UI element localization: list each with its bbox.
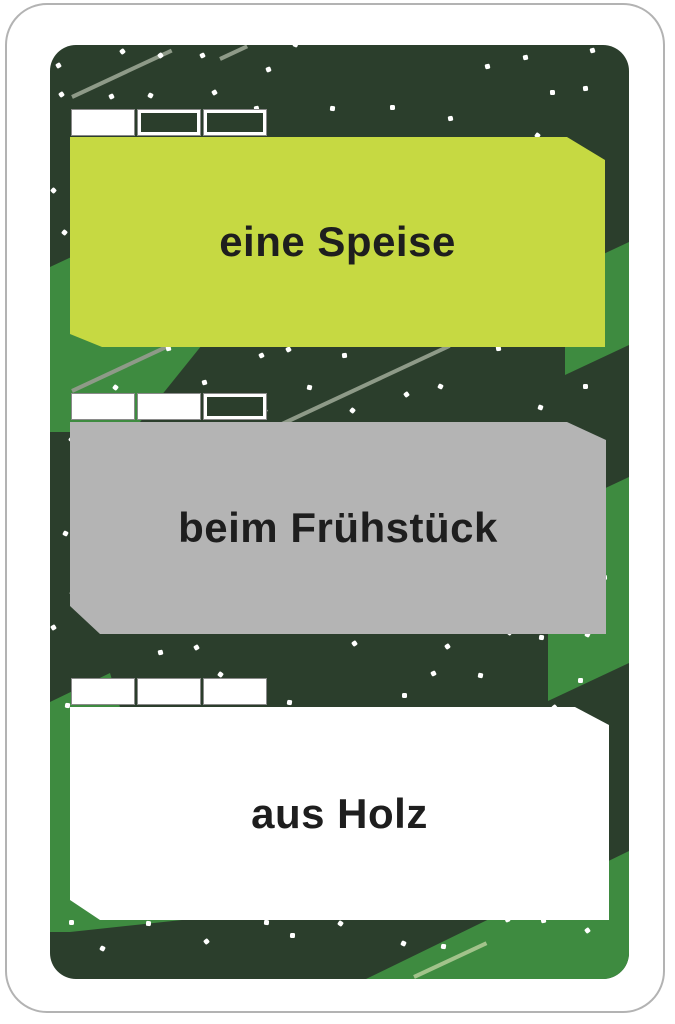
- confetti-dot: [444, 643, 451, 650]
- confetti-dot: [578, 678, 583, 683]
- confetti-dot: [437, 383, 444, 390]
- confetti-dot: [478, 673, 484, 679]
- confetti-dot: [211, 89, 218, 96]
- confetti-dot: [290, 933, 295, 938]
- confetti-dot: [583, 384, 588, 389]
- confetti-dot: [264, 920, 269, 925]
- confetti-dot: [390, 105, 395, 110]
- word-panel-top: eine Speise: [70, 137, 605, 347]
- progress-tabs-row-1: [72, 110, 266, 135]
- confetti-dot: [400, 940, 407, 947]
- confetti-dot: [69, 920, 74, 925]
- confetti-dot: [287, 700, 293, 706]
- tab-indicator-filled: [138, 394, 200, 419]
- confetti-dot: [441, 944, 447, 950]
- confetti-dot: [146, 921, 151, 926]
- confetti-dot: [201, 379, 207, 385]
- tab-indicator-empty: [204, 394, 266, 419]
- game-card: eine Speise beim Frühstück aus Holz: [5, 3, 665, 1013]
- tab-indicator-empty: [138, 110, 200, 135]
- confetti-dot: [158, 650, 164, 656]
- confetti-dot: [537, 404, 543, 410]
- confetti-dot: [448, 116, 454, 122]
- confetti-dot: [147, 92, 154, 99]
- tab-indicator-filled: [72, 679, 134, 704]
- confetti-dot: [62, 530, 69, 537]
- confetti-dot: [337, 920, 344, 927]
- confetti-dot: [349, 407, 356, 414]
- tab-indicator-filled: [72, 394, 134, 419]
- confetti-dot: [199, 52, 206, 59]
- tab-indicator-filled: [204, 679, 266, 704]
- panel-label: aus Holz: [251, 790, 428, 838]
- confetti-dot: [55, 62, 62, 69]
- confetti-dot: [485, 64, 491, 70]
- confetti-dot: [402, 693, 407, 698]
- confetti-dot: [203, 938, 210, 945]
- confetti-dot: [330, 106, 335, 111]
- confetti-dot: [292, 45, 298, 48]
- confetti-dot: [193, 644, 200, 651]
- word-panel-middle: beim Frühstück: [70, 422, 606, 634]
- confetti-dot: [50, 187, 57, 194]
- tab-indicator-filled: [138, 679, 200, 704]
- confetti-dot: [58, 91, 65, 98]
- word-panel-bottom: aus Holz: [70, 707, 609, 920]
- confetti-dot: [430, 670, 437, 677]
- confetti-dot: [351, 640, 358, 647]
- progress-tabs-row-3: [72, 679, 266, 704]
- panel-label: eine Speise: [219, 218, 456, 266]
- confetti-dot: [65, 703, 71, 709]
- confetti-dot: [217, 671, 224, 678]
- card-artwork: eine Speise beim Frühstück aus Holz: [50, 45, 629, 979]
- progress-tabs-row-2: [72, 394, 266, 419]
- confetti-dot: [108, 93, 115, 100]
- confetti-dot: [583, 86, 588, 91]
- diagonal-accent-line: [219, 45, 248, 61]
- confetti-dot: [285, 346, 292, 353]
- confetti-dot: [50, 624, 57, 631]
- confetti-dot: [539, 635, 545, 641]
- confetti-dot: [307, 385, 313, 391]
- tab-indicator-empty: [204, 110, 266, 135]
- confetti-dot: [265, 66, 271, 72]
- confetti-dot: [403, 391, 410, 398]
- confetti-dot: [523, 55, 529, 61]
- confetti-dot: [99, 945, 106, 952]
- confetti-dot: [61, 229, 68, 236]
- confetti-dot: [258, 352, 265, 359]
- confetti-dot: [550, 90, 555, 95]
- confetti-dot: [342, 353, 347, 358]
- panel-label: beim Frühstück: [178, 504, 498, 552]
- tab-indicator-filled: [72, 110, 134, 135]
- confetti-dot: [119, 48, 126, 55]
- confetti-dot: [589, 47, 595, 53]
